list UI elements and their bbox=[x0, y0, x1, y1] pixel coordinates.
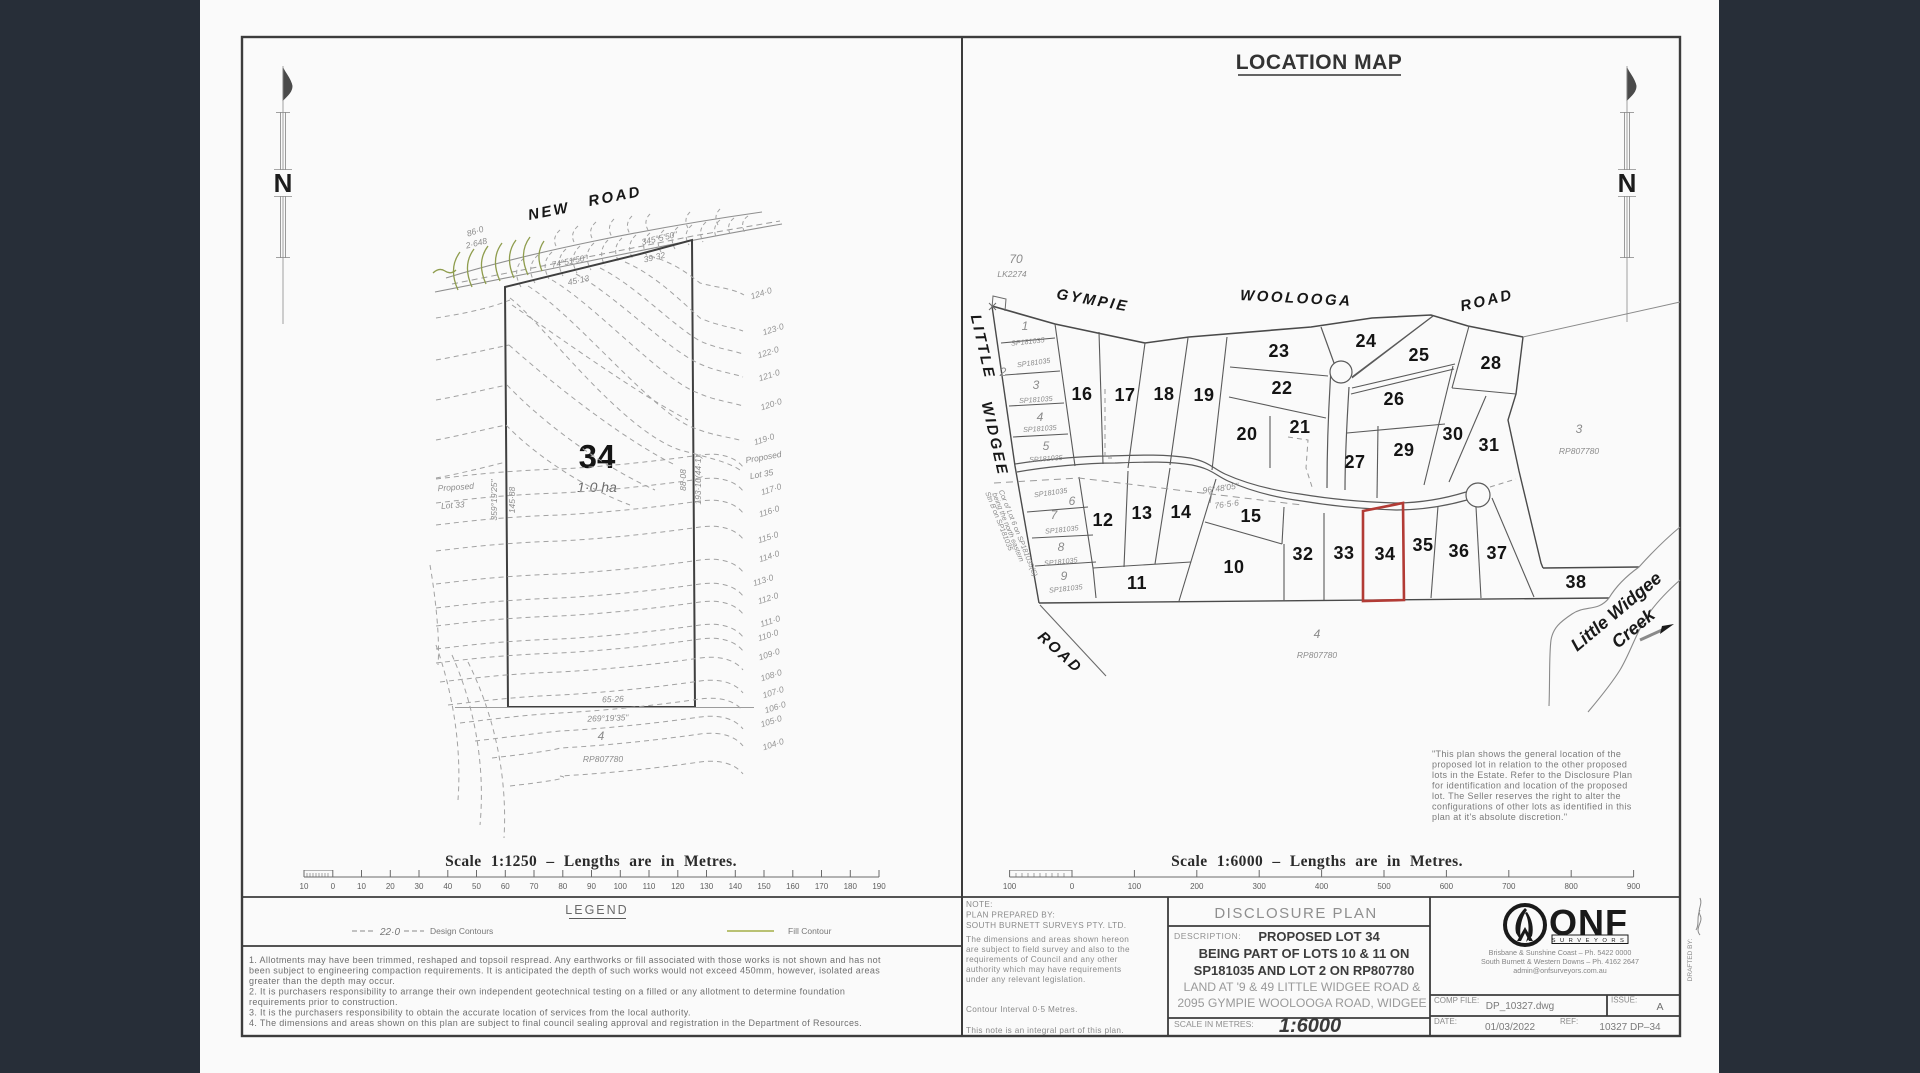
svg-text:100: 100 bbox=[1128, 882, 1142, 891]
svg-text:DRAFTED BY:: DRAFTED BY: bbox=[1687, 939, 1694, 982]
svg-text:10: 10 bbox=[357, 882, 366, 891]
svg-text:4: 4 bbox=[1037, 410, 1044, 424]
svg-text:13: 13 bbox=[1131, 503, 1152, 523]
svg-text:70: 70 bbox=[530, 882, 539, 891]
svg-text:Design Contours: Design Contours bbox=[430, 926, 493, 936]
svg-text:SURVEYORS: SURVEYORS bbox=[1552, 938, 1629, 944]
svg-text:RP807780: RP807780 bbox=[1559, 446, 1599, 456]
svg-text:Scale 1:1250 – Lengths are i: Scale 1:1250 – Lengths are in Metres. bbox=[445, 853, 737, 870]
svg-text:145·88: 145·88 bbox=[507, 486, 517, 513]
svg-text:lot. The Seller reserves the r: lot. The Seller reserves the right to al… bbox=[1432, 791, 1621, 801]
svg-text:26: 26 bbox=[1383, 389, 1404, 409]
svg-text:Scale 1:6000 – Lengths are i: Scale 1:6000 – Lengths are in Metres. bbox=[1171, 853, 1463, 870]
svg-text:01/03/2022: 01/03/2022 bbox=[1485, 1022, 1535, 1033]
svg-text:The dimensions and areas shown: The dimensions and areas shown hereon bbox=[966, 935, 1129, 944]
svg-text:requirements prior to construc: requirements prior to construction. bbox=[249, 997, 398, 1007]
svg-text:4: 4 bbox=[598, 729, 605, 743]
svg-text:10: 10 bbox=[300, 882, 309, 891]
svg-text:38: 38 bbox=[1565, 572, 1586, 592]
svg-text:ISSUE:: ISSUE: bbox=[1611, 996, 1637, 1005]
svg-text:269°19'35": 269°19'35" bbox=[586, 712, 629, 723]
svg-text:170: 170 bbox=[815, 882, 829, 891]
svg-text:Lot 33: Lot 33 bbox=[441, 499, 466, 511]
svg-text:LK2274: LK2274 bbox=[997, 269, 1027, 279]
svg-text:BEING PART OF LOTS 10 & 11 ON: BEING PART OF LOTS 10 & 11 ON bbox=[1199, 946, 1410, 961]
svg-text:requirements of Council and an: requirements of Council and any other bbox=[966, 955, 1118, 964]
svg-text:700: 700 bbox=[1502, 882, 1516, 891]
svg-text:120: 120 bbox=[671, 882, 685, 891]
svg-text:are subject to field survey an: are subject to field survey and also to … bbox=[966, 945, 1130, 954]
svg-text:190: 190 bbox=[872, 882, 886, 891]
svg-text:359°19'25": 359°19'25" bbox=[489, 478, 499, 520]
svg-text:2. It is purchasers responsibi: 2. It is purchasers responsibility to ar… bbox=[249, 987, 845, 997]
svg-text:14: 14 bbox=[1170, 502, 1191, 522]
svg-text:SP181035 AND LOT 2 ON RP807780: SP181035 AND LOT 2 ON RP807780 bbox=[1194, 963, 1415, 978]
svg-text:300: 300 bbox=[1253, 882, 1267, 891]
svg-text:LEGEND: LEGEND bbox=[565, 903, 628, 917]
svg-text:25: 25 bbox=[1408, 345, 1429, 365]
svg-text:90: 90 bbox=[587, 882, 596, 891]
svg-text:This note is an integral part: This note is an integral part of this pl… bbox=[966, 1026, 1124, 1035]
svg-text:configurations of other lots a: configurations of other lots as identifi… bbox=[1432, 802, 1632, 812]
svg-text:10: 10 bbox=[1223, 557, 1244, 577]
svg-text:193·10(44·1): 193·10(44·1) bbox=[693, 455, 703, 504]
svg-text:SCALE IN METRES:: SCALE IN METRES: bbox=[1174, 1019, 1254, 1029]
svg-text:"This plan shows the general l: "This plan shows the general location of… bbox=[1432, 749, 1621, 759]
svg-text:150: 150 bbox=[757, 882, 771, 891]
svg-text:1: 1 bbox=[1022, 319, 1029, 333]
svg-text:18: 18 bbox=[1153, 384, 1174, 404]
svg-text:50: 50 bbox=[472, 882, 481, 891]
svg-text:N: N bbox=[1618, 168, 1637, 198]
svg-text:3. It is the purchasers respon: 3. It is the purchasers responsibility t… bbox=[249, 1008, 691, 1018]
svg-text:SOUTH BURNETT SURVEYS PTY. LTD: SOUTH BURNETT SURVEYS PTY. LTD. bbox=[966, 921, 1126, 930]
svg-text:DP_10327.dwg: DP_10327.dwg bbox=[1486, 1001, 1554, 1012]
svg-text:130: 130 bbox=[700, 882, 714, 891]
svg-text:32: 32 bbox=[1292, 544, 1313, 564]
svg-text:authority which may have requi: authority which may have requirements bbox=[966, 965, 1121, 974]
svg-text:NOTE:: NOTE: bbox=[966, 900, 993, 909]
svg-text:900: 900 bbox=[1627, 882, 1641, 891]
svg-text:140: 140 bbox=[729, 882, 743, 891]
svg-text:34: 34 bbox=[579, 438, 616, 475]
svg-text:2095 GYMPIE WOOLOOGA ROAD, WID: 2095 GYMPIE WOOLOOGA ROAD, WIDGEE bbox=[1177, 996, 1426, 1010]
svg-text:RP807780: RP807780 bbox=[583, 754, 623, 764]
svg-text:DISCLOSURE PLAN: DISCLOSURE PLAN bbox=[1214, 905, 1377, 922]
svg-text:3: 3 bbox=[1033, 378, 1040, 392]
svg-text:21: 21 bbox=[1289, 417, 1310, 437]
svg-text:RP807780: RP807780 bbox=[1297, 650, 1337, 660]
svg-text:400: 400 bbox=[1315, 882, 1329, 891]
svg-text:35: 35 bbox=[1412, 535, 1433, 555]
svg-text:4. The dimensions and areas sh: 4. The dimensions and areas shown on thi… bbox=[249, 1018, 862, 1028]
svg-text:10327 DP–34: 10327 DP–34 bbox=[1599, 1022, 1661, 1033]
svg-text:PLAN PREPARED BY:: PLAN PREPARED BY: bbox=[966, 911, 1055, 920]
svg-text:30: 30 bbox=[415, 882, 424, 891]
svg-text:LOCATION MAP: LOCATION MAP bbox=[1236, 51, 1403, 74]
svg-text:1·0 ha: 1·0 ha bbox=[577, 479, 617, 495]
svg-text:34: 34 bbox=[1374, 544, 1395, 564]
svg-text:60: 60 bbox=[501, 882, 510, 891]
svg-text:20: 20 bbox=[1236, 424, 1257, 444]
svg-text:20: 20 bbox=[386, 882, 395, 891]
svg-text:65·26: 65·26 bbox=[602, 694, 624, 705]
svg-text:24: 24 bbox=[1355, 331, 1376, 351]
svg-text:2: 2 bbox=[999, 365, 1007, 379]
svg-text:Fill Contour: Fill Contour bbox=[788, 926, 832, 936]
svg-text:37: 37 bbox=[1486, 543, 1507, 563]
svg-text:15: 15 bbox=[1240, 506, 1261, 526]
svg-text:17: 17 bbox=[1114, 385, 1135, 405]
svg-text:8: 8 bbox=[1058, 540, 1065, 554]
svg-text:88·08: 88·08 bbox=[678, 469, 688, 491]
svg-text:200: 200 bbox=[1190, 882, 1204, 891]
svg-text:DATE:: DATE: bbox=[1434, 1017, 1457, 1026]
svg-text:3: 3 bbox=[1576, 422, 1583, 436]
svg-text:23: 23 bbox=[1268, 341, 1289, 361]
svg-text:12: 12 bbox=[1092, 510, 1113, 530]
svg-text:COMP FILE:: COMP FILE: bbox=[1434, 996, 1479, 1005]
svg-text:lots in the Estate. Refer to t: lots in the Estate. Refer to the Disclos… bbox=[1432, 770, 1632, 780]
svg-text:1. Allotments may have been tr: 1. Allotments may have been trimmed, res… bbox=[249, 955, 881, 965]
svg-text:9: 9 bbox=[1061, 569, 1068, 583]
svg-text:22: 22 bbox=[1271, 378, 1292, 398]
svg-text:0: 0 bbox=[1070, 882, 1075, 891]
svg-text:27: 27 bbox=[1344, 452, 1365, 472]
svg-text:70: 70 bbox=[1009, 252, 1023, 266]
svg-text:31: 31 bbox=[1478, 435, 1499, 455]
svg-text:5: 5 bbox=[1043, 439, 1050, 453]
svg-text:been subject to engineering co: been subject to engineering compaction r… bbox=[249, 966, 880, 976]
svg-text:Contour Interval 0·5 Metres.: Contour Interval 0·5 Metres. bbox=[966, 1005, 1078, 1014]
svg-text:REF:: REF: bbox=[1560, 1017, 1578, 1026]
svg-text:PROPOSED LOT 34: PROPOSED LOT 34 bbox=[1258, 929, 1380, 944]
svg-text:22·0: 22·0 bbox=[379, 927, 400, 938]
svg-text:500: 500 bbox=[1377, 882, 1391, 891]
svg-text:28: 28 bbox=[1480, 353, 1501, 373]
svg-text:16: 16 bbox=[1071, 384, 1092, 404]
svg-text:11: 11 bbox=[1127, 573, 1147, 593]
svg-text:1:6000: 1:6000 bbox=[1279, 1015, 1341, 1037]
svg-text:180: 180 bbox=[844, 882, 858, 891]
svg-text:for identification and locatio: for identification and location of the p… bbox=[1432, 781, 1628, 791]
svg-text:Brisbane & Sunshine Coast –: Brisbane & Sunshine Coast – Ph. 5422 000… bbox=[1489, 948, 1632, 957]
svg-text:19: 19 bbox=[1193, 385, 1214, 405]
svg-text:admin@onfsurveyors.com.au: admin@onfsurveyors.com.au bbox=[1513, 966, 1607, 975]
svg-text:160: 160 bbox=[786, 882, 800, 891]
svg-text:40: 40 bbox=[443, 882, 452, 891]
svg-text:30: 30 bbox=[1442, 424, 1463, 444]
svg-text:plan at it's absolute discreti: plan at it's absolute discretion." bbox=[1432, 812, 1567, 822]
svg-text:100: 100 bbox=[1003, 882, 1017, 891]
svg-text:A: A bbox=[1656, 1001, 1663, 1013]
svg-text:DESCRIPTION:: DESCRIPTION: bbox=[1174, 931, 1241, 941]
svg-text:4: 4 bbox=[1314, 627, 1321, 641]
svg-text:6: 6 bbox=[1069, 494, 1076, 508]
svg-text:29: 29 bbox=[1393, 440, 1414, 460]
svg-text:greater than the depth may occ: greater than the depth may occur. bbox=[249, 976, 395, 986]
svg-text:33: 33 bbox=[1333, 543, 1354, 563]
svg-text:800: 800 bbox=[1565, 882, 1579, 891]
svg-text:100: 100 bbox=[614, 882, 628, 891]
svg-text:South Burnett & Western Downs: South Burnett & Western Downs – Ph. 4162… bbox=[1481, 957, 1639, 966]
svg-text:LAND AT '9 & 49 LITTLE WIDGEE: LAND AT '9 & 49 LITTLE WIDGEE ROAD & bbox=[1184, 980, 1421, 994]
svg-text:under any relevant legislation: under any relevant legislation. bbox=[966, 975, 1086, 984]
svg-text:110: 110 bbox=[643, 882, 656, 891]
svg-text:36: 36 bbox=[1448, 541, 1469, 561]
svg-text:N: N bbox=[274, 168, 293, 198]
svg-text:0: 0 bbox=[331, 882, 336, 891]
svg-text:600: 600 bbox=[1440, 882, 1454, 891]
svg-text:80: 80 bbox=[558, 882, 567, 891]
svg-text:proposed lot in relation to th: proposed lot in relation to the other pr… bbox=[1432, 760, 1627, 770]
